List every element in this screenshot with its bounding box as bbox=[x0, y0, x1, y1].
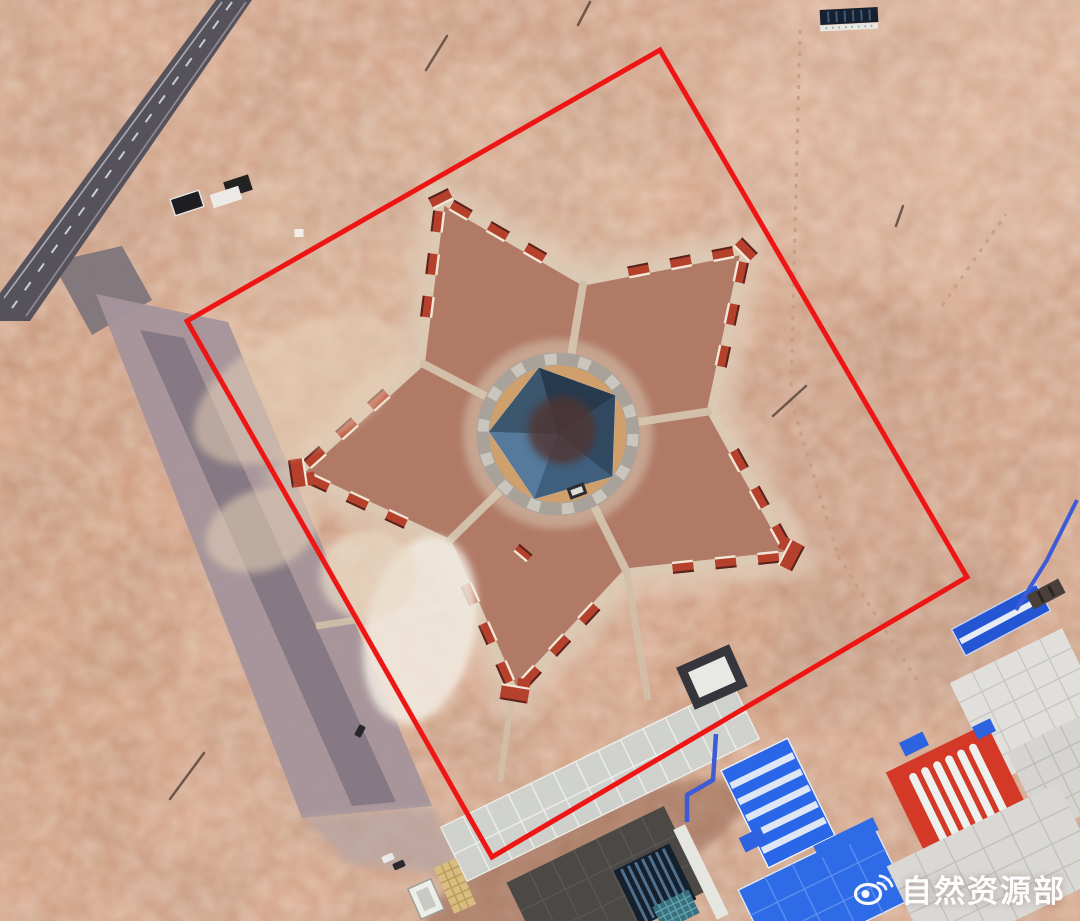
small-white-shed bbox=[295, 229, 304, 237]
worker-cabin bbox=[420, 296, 434, 318]
worker-cabin bbox=[715, 555, 737, 569]
satellite-scene bbox=[0, 0, 1080, 921]
worker-cabin bbox=[757, 551, 779, 565]
worker-cabin bbox=[672, 560, 694, 574]
worker-cabin bbox=[431, 210, 445, 232]
satellite-image: 自然资源部 bbox=[0, 0, 1080, 921]
solar-array-top bbox=[820, 7, 879, 25]
roof-peak-stain bbox=[528, 396, 596, 464]
worker-cabin bbox=[425, 253, 439, 275]
